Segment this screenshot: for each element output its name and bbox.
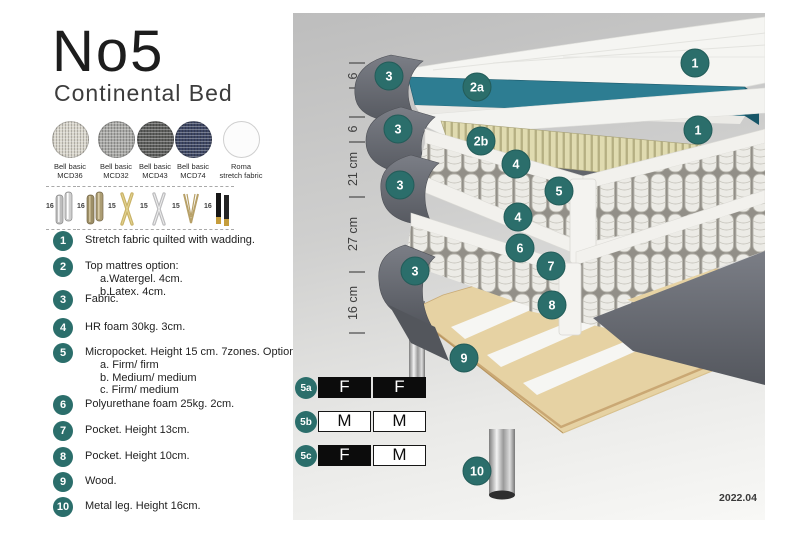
leg-icon-cross-gold (117, 191, 137, 227)
spec-number-badge: 3 (53, 290, 73, 310)
fabric-swatch: Bell basicMCD74 (170, 121, 216, 180)
spec-number-badge: 1 (53, 231, 73, 251)
leg-icon-hairpin-gold (181, 191, 201, 227)
callout-6: 6 (506, 234, 534, 262)
product-subtitle: Continental Bed (54, 80, 233, 107)
svg-text:1: 1 (695, 124, 702, 138)
firmness-row-5c: F M (318, 445, 426, 466)
spec-text: Metal leg. Height 16cm. (85, 497, 201, 513)
spec-text: Polyurethane foam 25kg. 2cm. (85, 395, 234, 411)
callout-3-d: 3 (401, 257, 429, 285)
fabric-swatch-circle (137, 121, 174, 158)
leg-icon-cylinder-bronze (86, 191, 106, 227)
callout-10: 10 (463, 457, 491, 485)
firmness-cell: F (373, 377, 426, 398)
spec-number-badge: 6 (53, 395, 73, 415)
ruler-label-6-mid: 6 (346, 125, 360, 132)
svg-text:2a: 2a (470, 81, 485, 95)
svg-text:6: 6 (517, 242, 524, 256)
metal-leg-front (489, 429, 515, 500)
svg-text:3: 3 (397, 179, 404, 193)
spec-item: 8 Pocket. Height 10cm. (53, 447, 190, 467)
leg-icon-block-black-gold (213, 191, 233, 227)
svg-text:4: 4 (515, 211, 522, 225)
spec-text: Micropocket. Height 15 cm. 7zones. Optio… (85, 343, 298, 397)
spec-sub-option: a.Watergel. 4cm. (100, 273, 183, 286)
spec-item: 7 Pocket. Height 13cm. (53, 421, 190, 441)
fabric-swatch-circle (223, 121, 260, 158)
fabric-swatch-circle (98, 121, 135, 158)
svg-text:1: 1 (692, 57, 699, 71)
product-title: No5 (52, 18, 164, 85)
spec-number-badge: 10 (53, 497, 73, 517)
callout-5: 5 (545, 177, 573, 205)
fabric-swatch-label: Bell basicMCD74 (170, 162, 216, 180)
svg-text:8: 8 (549, 299, 556, 313)
spec-number-badge: 8 (53, 447, 73, 467)
ruler-label-16cm: 16 cm (346, 286, 360, 320)
leg-icon-cross-silver (149, 191, 169, 227)
ruler-label-27cm: 27 cm (346, 217, 360, 251)
leg-height-label: 16 (46, 203, 54, 210)
svg-text:7: 7 (548, 260, 555, 274)
spec-text: Pocket. Height 10cm. (85, 447, 190, 463)
leg-height-label: 15 (140, 203, 148, 210)
page: No5 Continental Bed Bell basicMCD36 Bell… (0, 0, 800, 533)
spec-number-badge: 7 (53, 421, 73, 441)
version-label: 2022.04 (719, 492, 757, 504)
callout-8: 8 (538, 291, 566, 319)
spec-item: 4 HR foam 30kg. 3cm. (53, 318, 185, 338)
leg-height-label: 15 (172, 203, 180, 210)
spec-item: 10 Metal leg. Height 16cm. (53, 497, 201, 517)
svg-text:9: 9 (461, 352, 468, 366)
diagram-panel: 6 6 21 cm 27 cm 16 cm (293, 13, 765, 520)
firmness-row-badge: 5b (295, 411, 317, 433)
spec-item: 9 Wood. (53, 472, 117, 492)
spec-item: 1 Stretch fabric quilted with wadding. (53, 231, 255, 251)
leg-icon-cylinder-silver (55, 191, 75, 227)
firmness-cell: M (373, 445, 426, 466)
leg-height-label: 16 (77, 203, 85, 210)
spec-item: 6 Polyurethane foam 25kg. 2cm. (53, 395, 234, 415)
spec-number-badge: 4 (53, 318, 73, 338)
callout-7: 7 (537, 252, 565, 280)
callout-9: 9 (450, 344, 478, 372)
svg-text:5: 5 (556, 185, 563, 199)
callout-4-top: 4 (502, 150, 530, 178)
firmness-cell: F (318, 445, 371, 466)
callout-1-mid: 1 (684, 116, 712, 144)
firmness-row-badge: 5a (295, 377, 317, 399)
leg-option: 15 (108, 186, 138, 230)
svg-text:3: 3 (412, 265, 419, 279)
fabric-swatch-label: Romastretch fabric (218, 162, 264, 180)
callout-1-top: 1 (681, 49, 709, 77)
callout-2b: 2b (467, 127, 495, 155)
callout-3-a: 3 (375, 62, 403, 90)
leg-height-label: 15 (108, 203, 116, 210)
ruler-label-21cm: 21 cm (346, 152, 360, 186)
firmness-row-5a: F F (318, 377, 426, 398)
leg-height-label: 16 (204, 203, 212, 210)
fabric-swatch: Romastretch fabric (218, 121, 264, 180)
firmness-row-5b: M M (318, 411, 426, 432)
spec-text: Stretch fabric quilted with wadding. (85, 231, 255, 247)
spec-number-badge: 9 (53, 472, 73, 492)
leg-option: 16 (46, 186, 76, 230)
callout-3-c: 3 (386, 171, 414, 199)
callout-2a: 2a (463, 73, 491, 101)
fabric-swatch-label: Bell basicMCD36 (47, 162, 93, 180)
fabric-swatch: Bell basicMCD36 (47, 121, 93, 180)
svg-text:2b: 2b (474, 135, 489, 149)
leg-option: 15 (140, 186, 170, 230)
spec-number-badge: 2 (53, 257, 73, 277)
leg-option: 15 (172, 186, 202, 230)
firmness-cell: M (373, 411, 426, 432)
firmness-row-badge: 5c (295, 445, 317, 467)
leg-option: 16 (77, 186, 107, 230)
leg-option: 16 (204, 186, 234, 230)
bed-diagram-svg: 6 6 21 cm 27 cm 16 cm (293, 13, 765, 520)
spec-text: Fabric. (85, 290, 119, 306)
spec-sub-option: b. Medium/ medium (100, 372, 298, 385)
spec-item: 5 Micropocket. Height 15 cm. 7zones. Opt… (53, 343, 298, 397)
callout-4-bot: 4 (504, 203, 532, 231)
svg-text:10: 10 (470, 465, 484, 479)
svg-text:3: 3 (386, 70, 393, 84)
spec-text: Pocket. Height 13cm. (85, 421, 190, 437)
fabric-swatch-circle (175, 121, 212, 158)
spec-text: Wood. (85, 472, 117, 488)
svg-text:3: 3 (395, 123, 402, 137)
spec-text: HR foam 30kg. 3cm. (85, 318, 185, 334)
spec-item: 3 Fabric. (53, 290, 119, 310)
spec-sub-option: a. Firm/ firm (100, 359, 298, 372)
firmness-cell: F (318, 377, 371, 398)
fabric-swatch-circle (52, 121, 89, 158)
spec-number-badge: 5 (53, 343, 73, 363)
callout-3-b: 3 (384, 115, 412, 143)
svg-text:4: 4 (513, 158, 520, 172)
firmness-cell: M (318, 411, 371, 432)
